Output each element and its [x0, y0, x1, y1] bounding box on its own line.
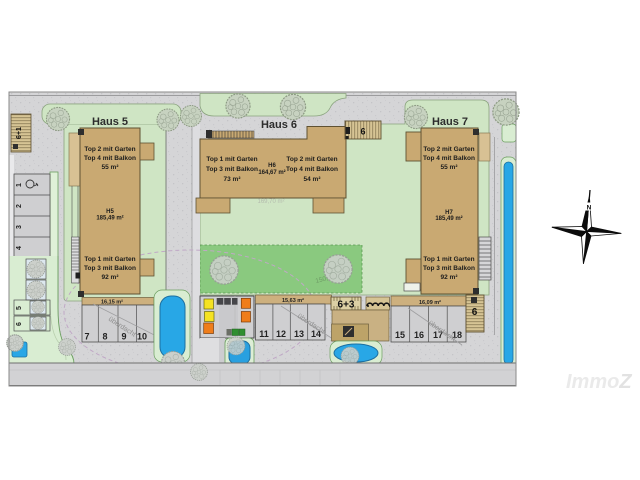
svg-text:6+3: 6+3 — [338, 300, 355, 311]
svg-text:11: 11 — [259, 329, 269, 339]
svg-text:H6: H6 — [268, 163, 276, 169]
svg-text:6+1: 6+1 — [16, 127, 23, 139]
svg-text:Haus 7: Haus 7 — [432, 116, 468, 128]
svg-text:12: 12 — [276, 329, 286, 339]
svg-text:16,15 m²: 16,15 m² — [101, 299, 123, 306]
svg-text:16: 16 — [414, 330, 424, 340]
svg-text:3: 3 — [16, 225, 23, 229]
svg-text:6: 6 — [472, 307, 478, 318]
svg-text:6: 6 — [360, 127, 365, 137]
svg-text:13: 13 — [294, 329, 304, 339]
svg-text:N: N — [587, 205, 592, 212]
svg-text:ImmoZ: ImmoZ — [566, 371, 632, 393]
svg-text:10: 10 — [137, 332, 147, 342]
svg-text:92 m²: 92 m² — [441, 274, 459, 281]
svg-text:Top 2 mit Garten: Top 2 mit Garten — [423, 146, 474, 153]
svg-text:Top 3 mit Balkon: Top 3 mit Balkon — [206, 166, 258, 173]
svg-text:Top 2 mit Garten: Top 2 mit Garten — [84, 146, 135, 153]
svg-text:Top 4 mit Balkon: Top 4 mit Balkon — [423, 155, 475, 162]
svg-text:55 m²: 55 m² — [441, 164, 459, 171]
svg-text:8: 8 — [102, 332, 107, 342]
svg-text:6: 6 — [16, 322, 23, 326]
svg-text:54 m²: 54 m² — [304, 176, 322, 183]
svg-text:2: 2 — [16, 204, 23, 208]
svg-text:15,63 m²: 15,63 m² — [282, 297, 304, 304]
svg-text:1: 1 — [16, 183, 23, 187]
svg-text:5: 5 — [16, 306, 23, 310]
svg-text:73 m²: 73 m² — [224, 176, 242, 183]
svg-text:92 m²: 92 m² — [102, 274, 120, 281]
svg-text:7: 7 — [84, 332, 89, 342]
svg-text:Haus 6: Haus 6 — [261, 119, 297, 131]
svg-text:Top 1 mit Garten: Top 1 mit Garten — [206, 156, 257, 163]
svg-text:Top 1 mit Garten: Top 1 mit Garten — [423, 256, 474, 263]
svg-text:169,70 m²: 169,70 m² — [257, 199, 284, 205]
svg-text:Top 3 mit Balkon: Top 3 mit Balkon — [423, 265, 475, 272]
svg-text:185,49 m²: 185,49 m² — [435, 215, 462, 222]
svg-text:Top 3 mit Balkon: Top 3 mit Balkon — [84, 265, 136, 272]
svg-text:4: 4 — [16, 246, 23, 250]
svg-text:164,67 m²: 164,67 m² — [258, 169, 285, 176]
svg-text:Top 1 mit Garten: Top 1 mit Garten — [84, 256, 135, 263]
svg-text:H5: H5 — [106, 209, 114, 215]
svg-text:15: 15 — [395, 330, 405, 340]
svg-text:16,09 m²: 16,09 m² — [419, 299, 441, 306]
svg-text:Haus 5: Haus 5 — [92, 116, 128, 128]
svg-text:185,49 m²: 185,49 m² — [96, 215, 123, 222]
svg-text:55 m²: 55 m² — [102, 164, 120, 171]
svg-text:Top 4 mit Balkon: Top 4 mit Balkon — [286, 166, 338, 173]
svg-text:Top 2 mit Garten: Top 2 mit Garten — [286, 156, 337, 163]
svg-text:Top 4 mit Balkon: Top 4 mit Balkon — [84, 155, 136, 162]
